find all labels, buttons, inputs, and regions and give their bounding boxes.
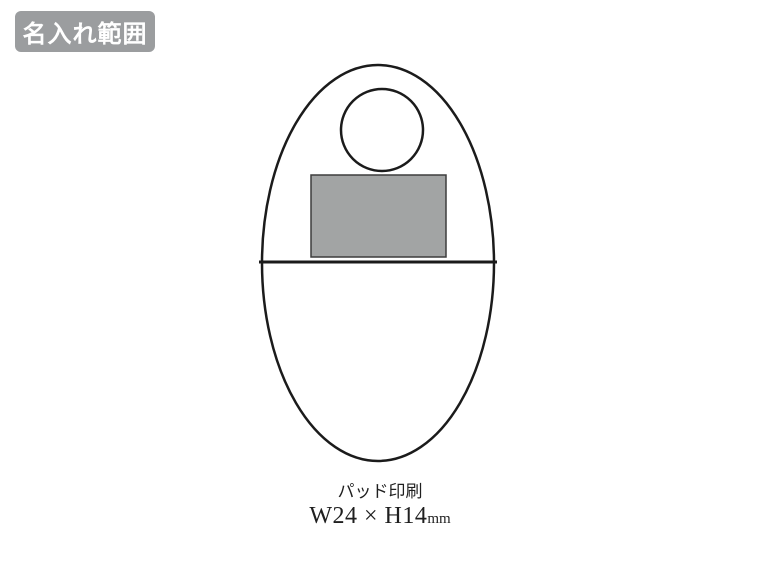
print-spec-caption: パッド印刷 W24 × H14mm xyxy=(0,481,760,533)
print-size-unit: mm xyxy=(427,511,450,527)
print-area-rect xyxy=(311,175,446,257)
print-size-text: W24 × H14mm xyxy=(0,503,760,533)
top-circle-outline xyxy=(341,89,423,171)
print-size-value: W24 × H14 xyxy=(309,503,427,529)
print-method-text: パッド印刷 xyxy=(0,481,760,503)
